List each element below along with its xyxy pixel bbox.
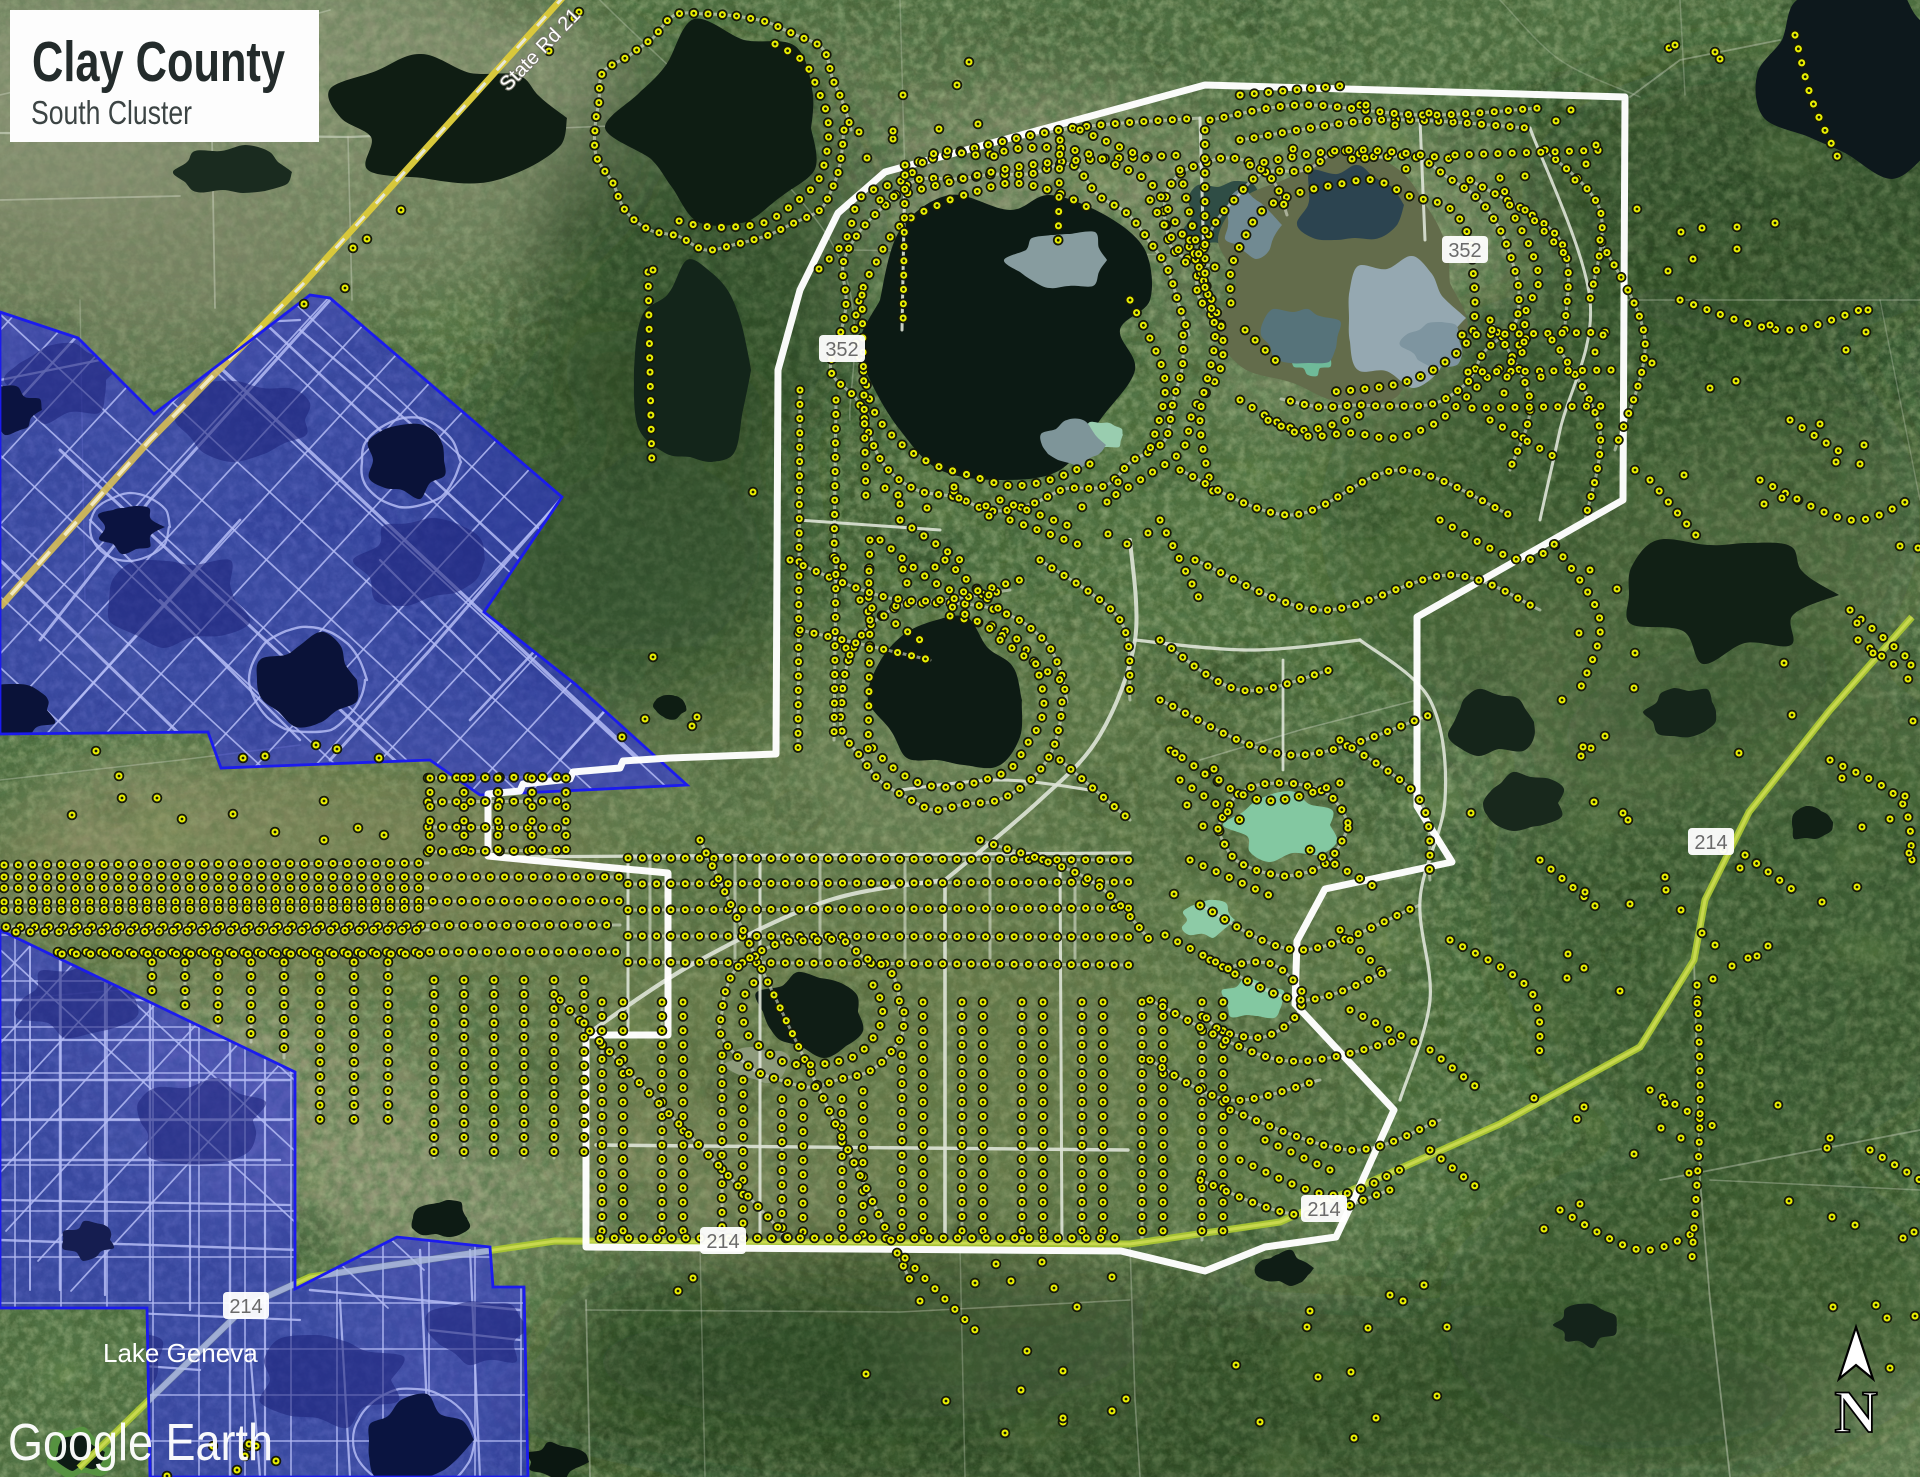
svg-text:352: 352 xyxy=(1448,240,1481,262)
svg-text:214: 214 xyxy=(1694,832,1727,854)
svg-text:Google Earth: Google Earth xyxy=(8,1414,273,1472)
svg-text:Lake Geneva: Lake Geneva xyxy=(103,1338,258,1368)
svg-text:Clay County: Clay County xyxy=(32,30,285,94)
svg-text:214: 214 xyxy=(1307,1199,1340,1221)
svg-text:214: 214 xyxy=(706,1231,739,1253)
svg-text:N: N xyxy=(1834,1379,1877,1445)
svg-text:South Cluster: South Cluster xyxy=(31,94,192,131)
svg-text:214: 214 xyxy=(229,1296,262,1318)
svg-text:352: 352 xyxy=(825,339,858,361)
